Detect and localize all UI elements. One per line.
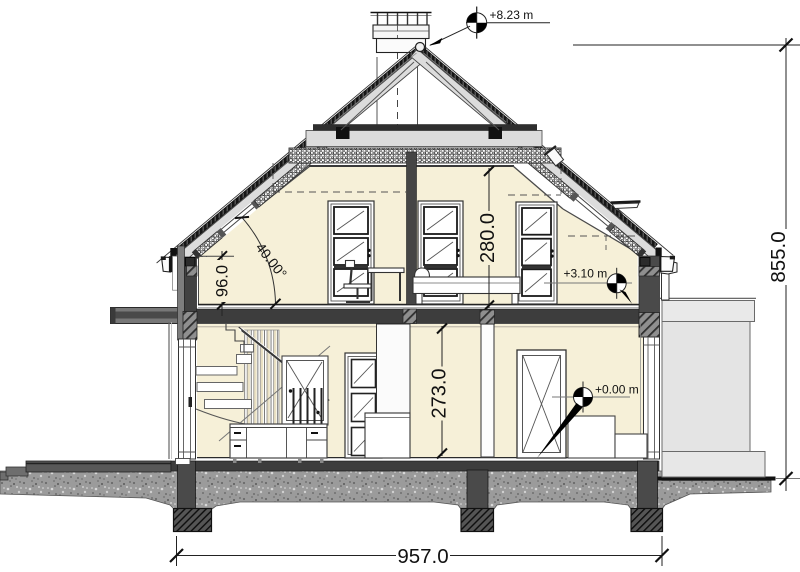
svg-text:+3.10 m: +3.10 m [564, 267, 608, 281]
svg-text:957.0: 957.0 [397, 545, 448, 568]
svg-text:273.0: 273.0 [429, 368, 451, 418]
svg-text:+0.00 m: +0.00 m [595, 383, 639, 397]
svg-text:96.0: 96.0 [214, 265, 232, 297]
svg-text:+8.23 m: +8.23 m [490, 8, 534, 22]
svg-text:855.0: 855.0 [767, 231, 790, 282]
svg-text:280.0: 280.0 [477, 213, 499, 263]
